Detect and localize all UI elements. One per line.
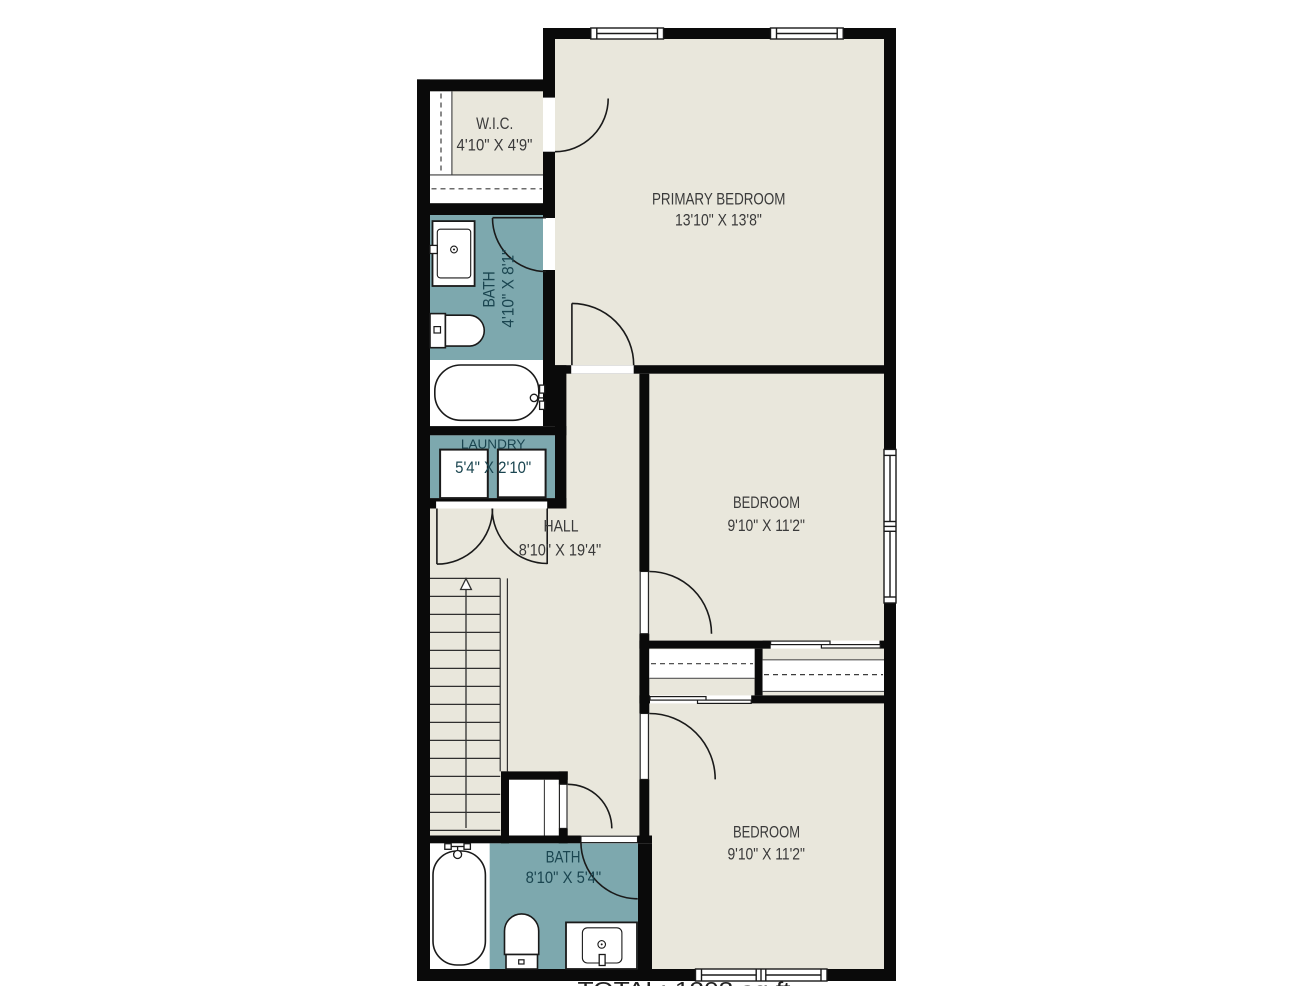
- svg-text:W.I.C.: W.I.C.: [476, 114, 513, 133]
- svg-text:9'10" X 11'2": 9'10" X 11'2": [727, 845, 805, 864]
- svg-text:BATH: BATH: [480, 271, 499, 307]
- svg-text:LAUNDRY: LAUNDRY: [461, 437, 526, 452]
- svg-text:BATH: BATH: [546, 848, 581, 867]
- svg-text:5'4" X 2'10": 5'4" X 2'10": [455, 458, 531, 477]
- svg-text:4'10" X 4'9": 4'10" X 4'9": [457, 136, 533, 155]
- svg-text:8'10" X 5'4": 8'10" X 5'4": [526, 868, 602, 887]
- svg-text:BEDROOM: BEDROOM: [733, 822, 800, 841]
- svg-text:4'10" X 8'1": 4'10" X 8'1": [499, 249, 518, 327]
- svg-text:HALL: HALL: [544, 516, 579, 535]
- svg-text:13'10" X 13'8": 13'10" X 13'8": [675, 211, 762, 230]
- svg-text:8'10" X 19'4": 8'10" X 19'4": [519, 541, 601, 560]
- svg-text:9'10" X 11'2": 9'10" X 11'2": [727, 516, 805, 535]
- svg-text:BEDROOM: BEDROOM: [733, 493, 800, 512]
- svg-text:PRIMARY BEDROOM: PRIMARY BEDROOM: [652, 189, 785, 208]
- svg-text:TOTAL: 1203 sq ft: TOTAL: 1203 sq ft: [578, 978, 791, 986]
